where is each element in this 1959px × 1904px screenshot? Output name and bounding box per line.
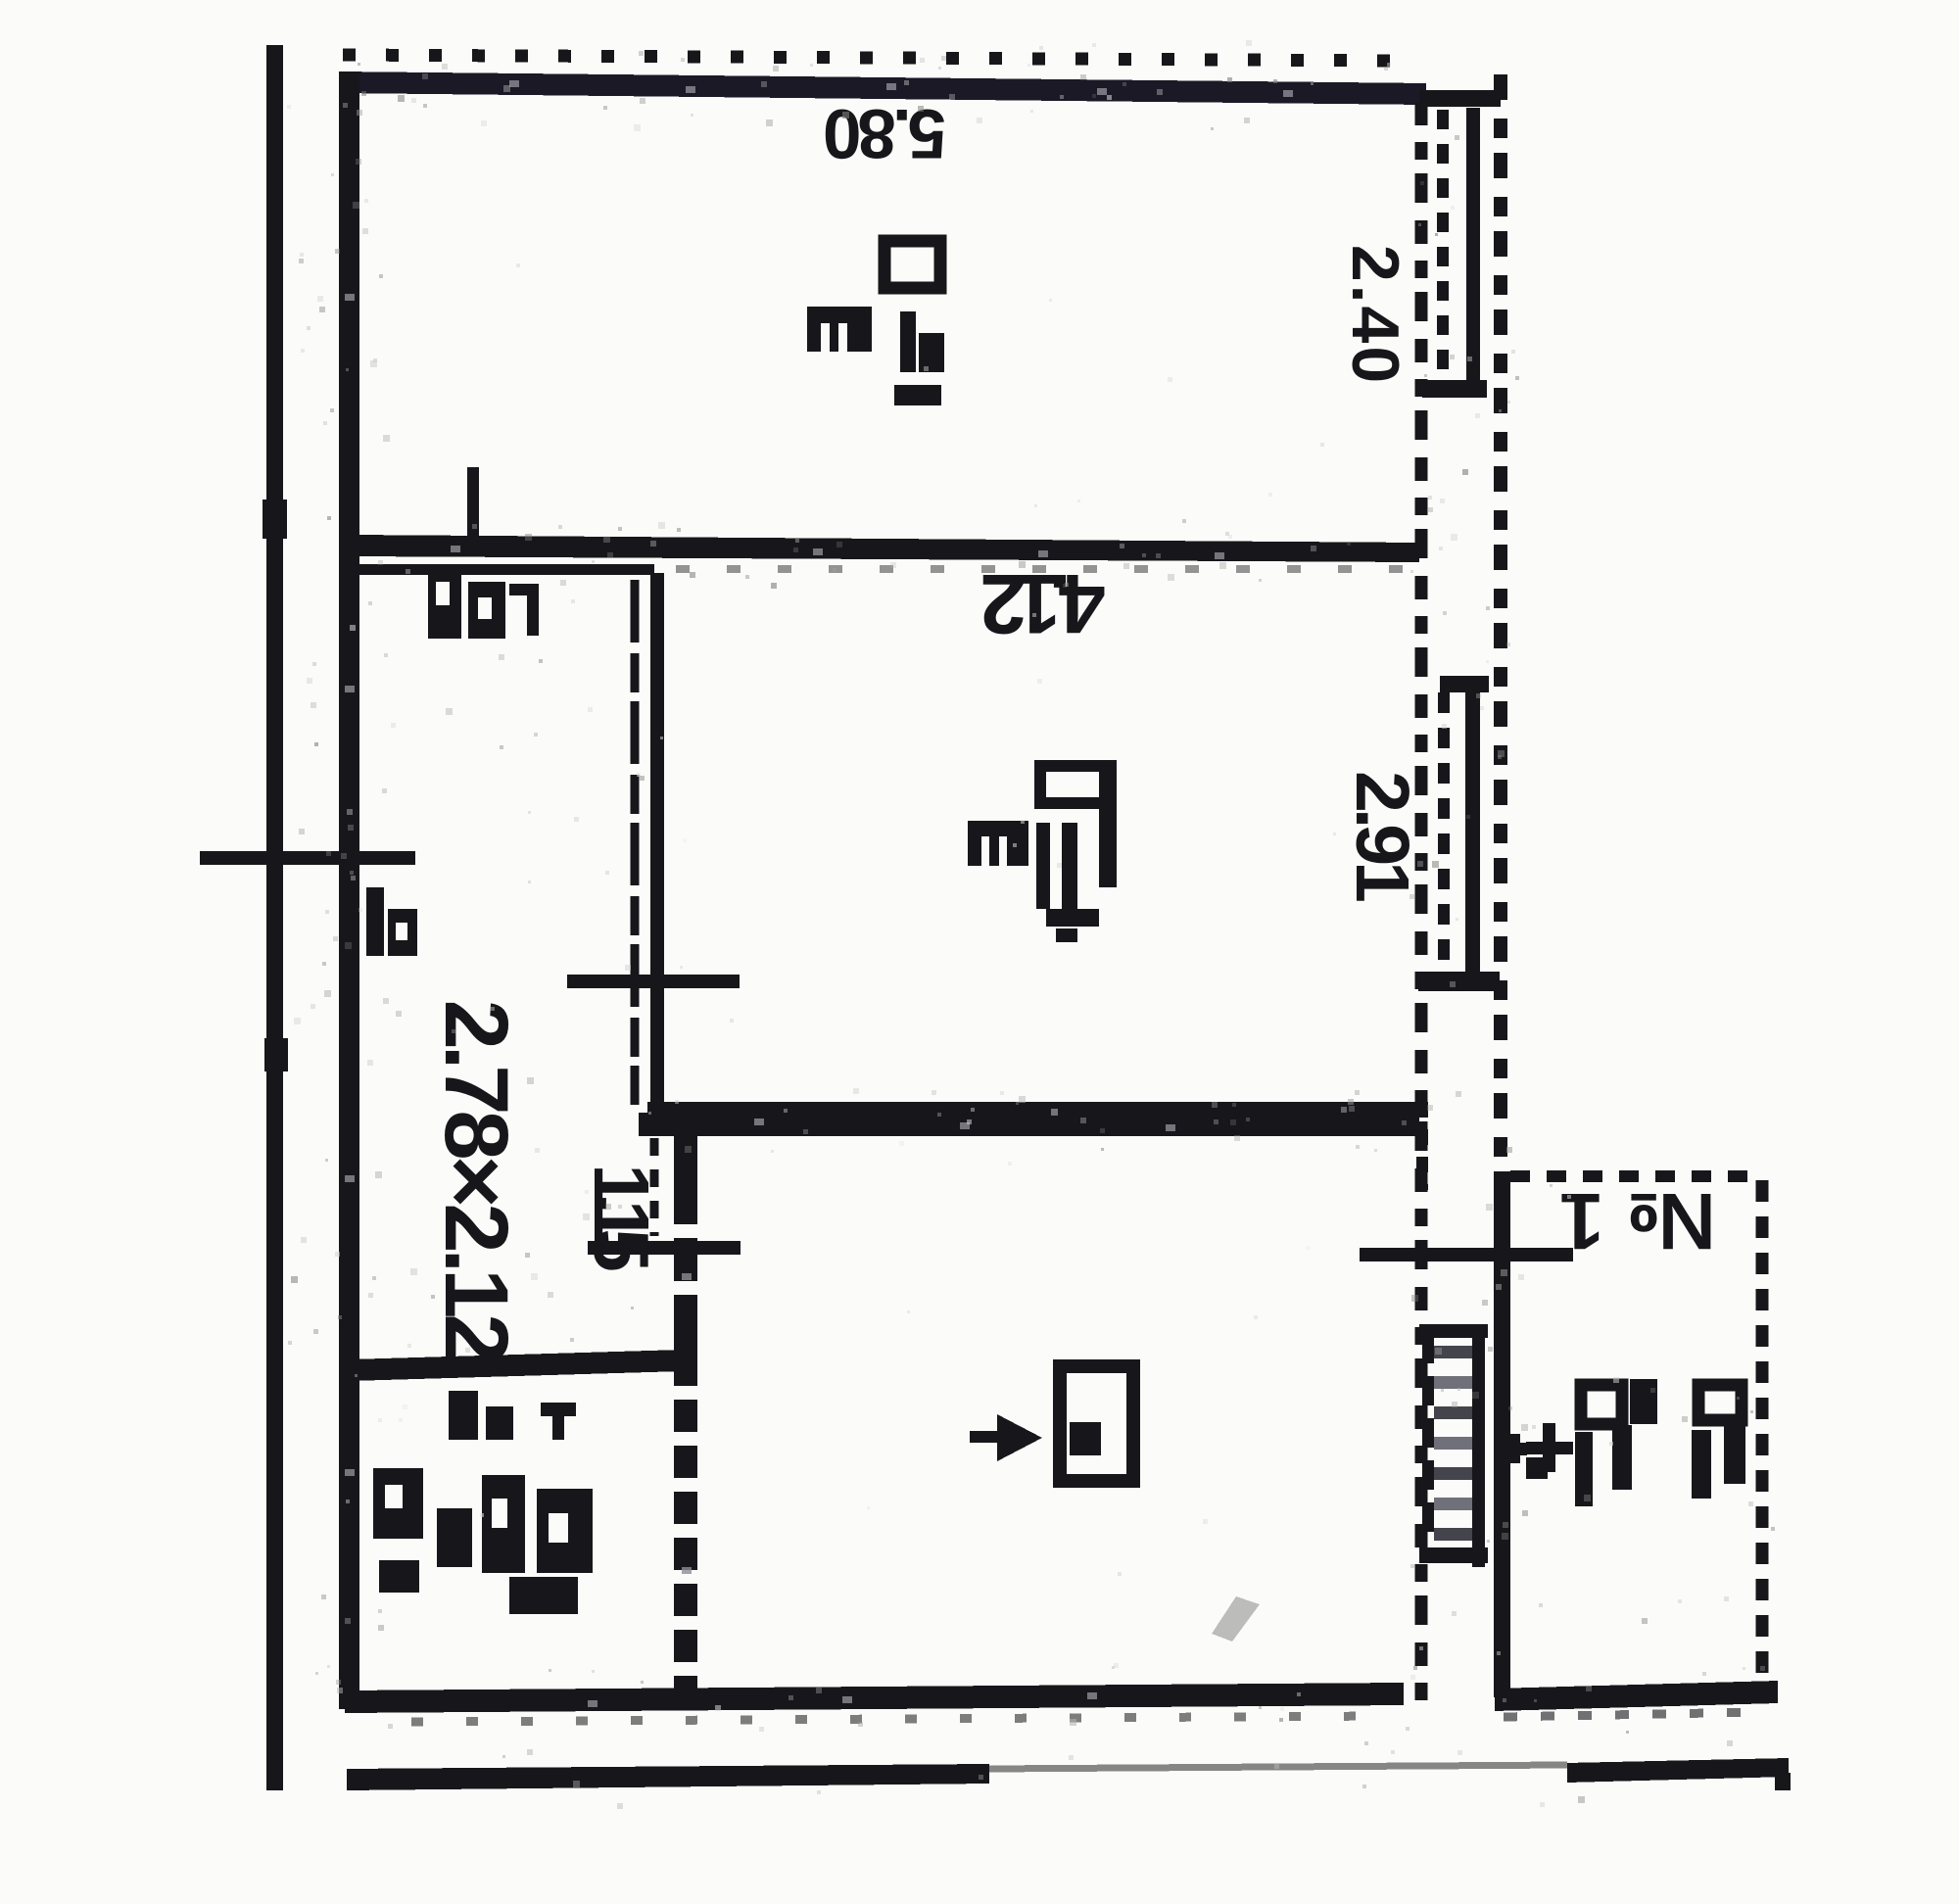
svg-text:2.91: 2.91: [1340, 771, 1424, 901]
svg-text:1.15: 1.15: [578, 1164, 665, 1270]
svg-text:№ 1: № 1: [1559, 1176, 1716, 1265]
svg-text:2.78×2.12: 2.78×2.12: [426, 1000, 526, 1361]
svg-text:5.80: 5.80: [825, 94, 946, 171]
svg-text:2.40: 2.40: [1338, 245, 1412, 386]
svg-text:4.12: 4.12: [982, 556, 1106, 650]
